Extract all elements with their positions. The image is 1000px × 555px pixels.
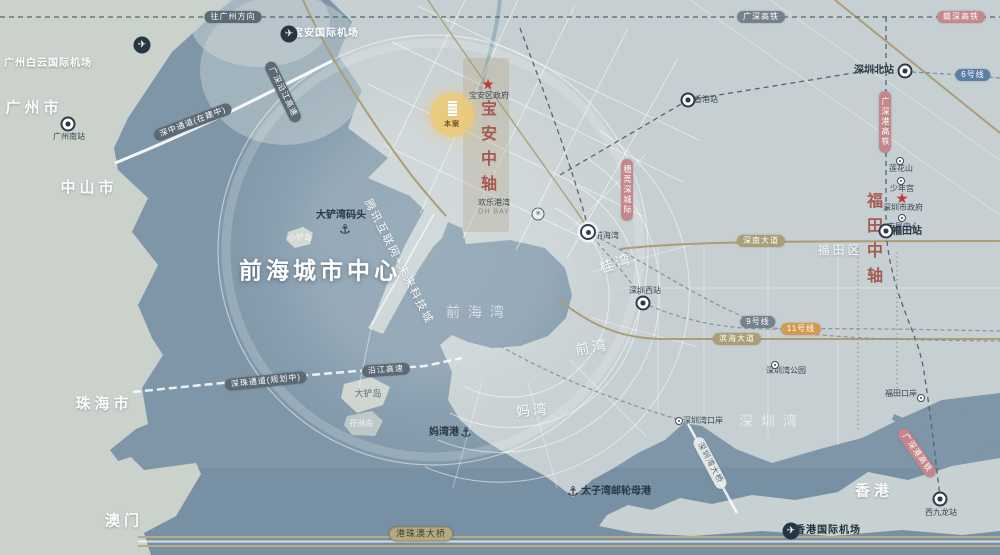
xijiulong-station-icon (933, 492, 948, 507)
lianhuashan-metro-icon (896, 157, 904, 165)
label-futian-station: 福田站 (892, 227, 922, 237)
civic-center-metro-icon (898, 214, 906, 222)
label-futian-district: 福田区 (817, 244, 862, 256)
label-guiwan: 桂湾 (598, 251, 635, 275)
pill-guangshen-hsr: 广深高铁 (737, 11, 785, 23)
szbay-checkpoint-icon (675, 417, 683, 425)
label-guangzhou-city: 广州市 (5, 101, 62, 116)
label-qianhaiwan-station: 前海湾 (595, 232, 619, 240)
project-building-icon (448, 101, 457, 117)
label-ohbay-en: OH BAY (478, 209, 510, 216)
pill-gsg-hsr-south: 广深港高铁 (896, 426, 939, 480)
shenzhenxi-station-icon (636, 296, 651, 311)
label-baoan-airport: 宝安国际机场 (293, 29, 359, 39)
label-qianwan: 前湾 (574, 337, 610, 357)
project-label: 本案 (444, 119, 460, 129)
pill-suiguanshen-intercity: 穗莞深城际 (621, 159, 633, 221)
futian-checkpoint-icon (917, 394, 925, 402)
pill-ganshen-hsr: 赣深高铁 (937, 11, 985, 23)
label-gz-airport: 广州白云国际机场 (4, 59, 92, 69)
label-mawan: 妈湾 (515, 402, 550, 419)
label-ohbay: 欢乐港湾 (478, 199, 510, 207)
label-macau: 澳门 (105, 514, 143, 529)
guangzhounan-station-icon (61, 117, 76, 132)
baoan-airport-icon: ✈ (281, 26, 298, 43)
ferris-wheel-icon: ✳ (532, 208, 545, 221)
taiziwan-anchor-icon: ⚓ (567, 485, 579, 498)
pill-shenzhu-corridor: 深珠通道(规划中) (224, 371, 307, 392)
map-labels-layer: 前海城市中心广州市中山市珠海市澳门香港福田区前海湾深圳湾桂湾前湾妈湾腾讯互联网+… (0, 0, 1000, 555)
label-lianhuashan: 莲花山 (889, 165, 913, 173)
pill-gsg-hsr-vertical: 广深港高铁 (879, 91, 891, 153)
shaoniangong-metro-icon (897, 177, 905, 185)
pill-shenzhong-corridor: 深中通道(在建中) (152, 102, 233, 143)
label-baoan-axis: 宝安中轴 (478, 100, 494, 200)
label-taiziwan-port: 太子湾邮轮母港 (581, 487, 651, 497)
label-qianhai-bay: 前海湾 (446, 305, 512, 319)
shenzhen-gov-star-icon: ★ (896, 191, 909, 205)
label-baoan-gov: 宝安区政府 (469, 92, 509, 100)
qianhaiwan-metro-icon (580, 224, 596, 240)
pill-shennan-avenue: 深南大道 (737, 235, 785, 247)
dachanwan-anchor-icon: ⚓ (339, 223, 351, 236)
label-dachan-island: 大铲岛 (354, 390, 381, 399)
shenzhenbei-station-icon (898, 64, 913, 79)
label-zhuhai-city: 珠海市 (75, 397, 132, 412)
pill-yanjiang-south: 沿江高速 (362, 362, 411, 377)
label-shenzhenbei-station: 深圳北站 (854, 66, 894, 76)
hk-airport-icon: ✈ (783, 523, 800, 540)
label-futian-axis: 福田中轴 (864, 192, 880, 292)
project-marker: 本案 (430, 93, 474, 137)
label-shenzhen-bay: 深圳湾 (739, 414, 805, 428)
label-hk-airport: 香港国际机场 (795, 526, 861, 536)
hongkong-station-icon (681, 93, 696, 108)
label-dachan-wharf: 大铲湾码头 (316, 211, 366, 221)
label-mawan-harbor: 妈湾港 (429, 428, 459, 438)
pill-szbay-bridge: 深圳湾大桥 (691, 435, 728, 491)
mawan-anchor-icon: ⚓ (460, 426, 472, 439)
label-zhongshan-city: 中山市 (60, 181, 117, 196)
label-xijiulong-station: 西九龙站 (925, 509, 957, 517)
label-futian-checkpoint: 福田口岸 (885, 390, 917, 398)
label-mazhou-island: 孖洲岛 (349, 420, 373, 428)
label-szbay-checkpoint: 深圳湾口岸 (683, 417, 723, 425)
futian-station-icon (879, 224, 894, 239)
pill-metro-line9: 9号线 (740, 316, 775, 328)
label-xiaochan-island: 小铲岛 (288, 234, 312, 242)
gz-airport-icon: ✈ (134, 37, 151, 54)
pill-hzm-bridge: 港珠澳大桥 (389, 527, 453, 542)
label-shenzhenxi-station: 深圳西站 (629, 287, 661, 295)
szbay-park-icon (771, 361, 779, 369)
label-hongkong-station: 香港站 (694, 96, 718, 104)
pill-binhai-avenue: 滨海大道 (713, 333, 761, 345)
baoan-gov-star-icon: ★ (482, 77, 495, 91)
qianhai-location-map: 前海城市中心广州市中山市珠海市澳门香港福田区前海湾深圳湾桂湾前湾妈湾腾讯互联网+… (0, 0, 1000, 555)
pill-metro-line6: 6号线 (955, 69, 990, 81)
label-guangzhounan-station: 广州南站 (53, 133, 85, 141)
pill-metro-line11: 11号线 (781, 323, 821, 335)
pill-yanjiang-expressway: 广深沿江高速 (263, 60, 303, 125)
pill-to-guangzhou: 往广州方向 (205, 11, 262, 23)
title-qianhai-city-center: 前海城市中心 (239, 260, 401, 283)
label-hongkong: 香港 (855, 484, 893, 499)
